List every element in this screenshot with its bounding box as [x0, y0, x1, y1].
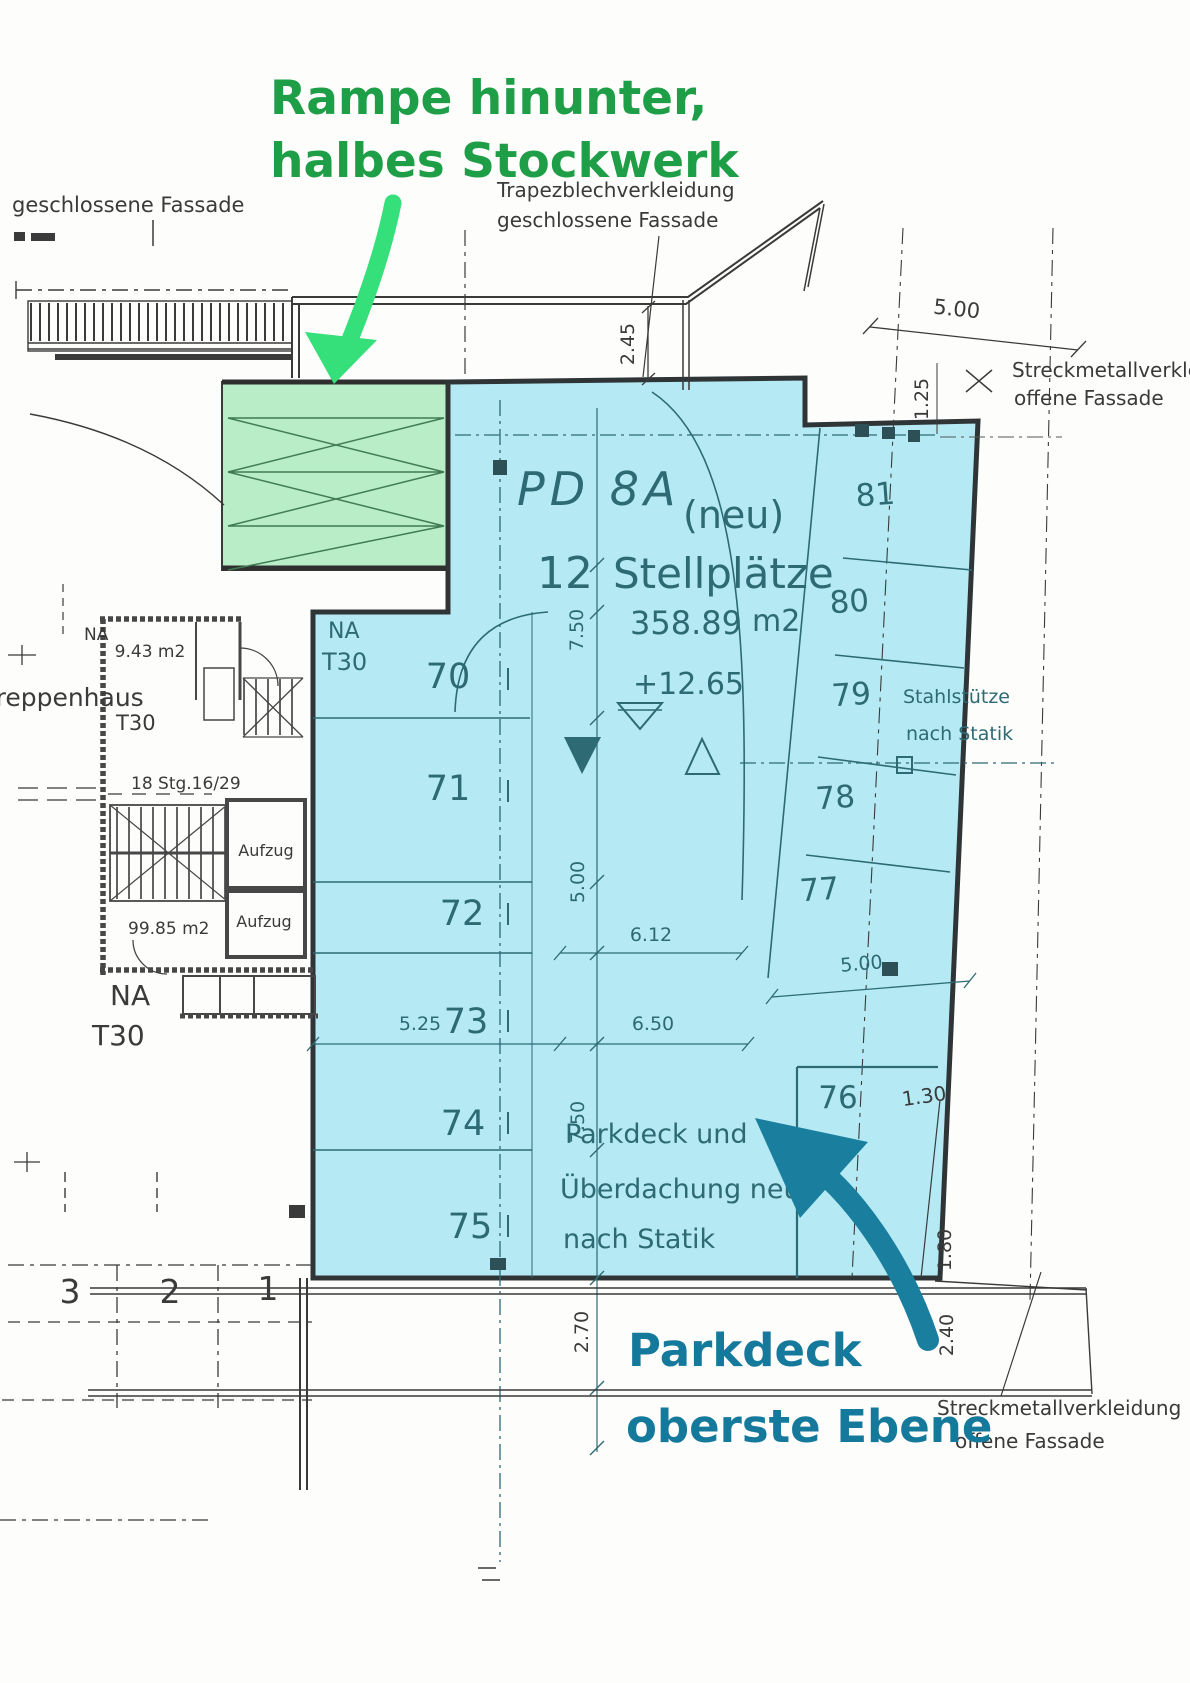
t30-label-upper: T30 [115, 711, 156, 735]
dim-750-upper: 7.50 [566, 609, 588, 651]
t30-label-lower: T30 [91, 1019, 145, 1052]
plan-level: +12.65 [633, 667, 744, 702]
label-offene-fassade-top: offene Fassade [1014, 386, 1164, 410]
dim-180: 1.80 [934, 1229, 956, 1271]
label-geschlossene-fassade-left: geschlossene Fassade [12, 193, 244, 217]
dim-125: 1.25 [911, 378, 933, 420]
stairs-count-label: 18 Stg.16/29 [131, 774, 241, 794]
na-label-upper: NA [84, 625, 109, 645]
room-area-large: 99.85 m2 [128, 919, 209, 939]
steel-note-line1: Stahlstütze [903, 686, 1010, 708]
lift-label-2: Aufzug [236, 912, 291, 931]
room-treppenhaus: Treppenhaus [0, 683, 144, 712]
spot-number-81: 81 [854, 476, 896, 515]
ground-spot-3: 3 [60, 1272, 81, 1311]
annotation-deck-line2: oberste Ebene [626, 1400, 992, 1453]
spot-number-74: 74 [441, 1104, 486, 1144]
dim-500-right: 5.00 [839, 951, 883, 977]
dim-240: 2.40 [936, 1314, 958, 1356]
facade-railing-band [14, 220, 292, 357]
dim-750-lower: 7.50 [567, 1101, 589, 1143]
dim-500-mid: 5.00 [567, 861, 589, 903]
plan-spot-count-label: Stellplätze [613, 549, 834, 598]
dim-245: 2.45 [617, 323, 639, 365]
na-label-plan: NA [328, 619, 360, 644]
plan-area-unit: m2 [752, 604, 800, 639]
spot-number-75: 75 [448, 1207, 493, 1247]
spot-number-72: 72 [440, 894, 485, 934]
plan-variant: (neu) [683, 493, 784, 537]
spot-number-71: 71 [426, 769, 471, 809]
deck-note-line1: Parkdeck und [565, 1119, 748, 1150]
plan-spot-count: 12 [537, 548, 593, 599]
dim-500-top: 5.00 [932, 295, 981, 324]
deck-note-line2: Überdachung neu [560, 1173, 801, 1205]
floor-plan-canvas: geschlossene Fassade Trapezblechverkleid… [0, 0, 1190, 1683]
na-label-lower: NA [110, 979, 150, 1012]
green-arrow [305, 203, 393, 384]
ground-spot-1: 1 [258, 1269, 279, 1308]
dim-270: 2.70 [571, 1311, 593, 1353]
spot-number-77: 77 [798, 871, 840, 910]
annotation-deck-line1: Parkdeck [628, 1324, 863, 1377]
dim-525: 5.25 [399, 1013, 441, 1035]
dim-612: 6.12 [630, 924, 672, 946]
lift-label-1: Aufzug [238, 841, 293, 860]
label-geschlossene-fassade-top: geschlossene Fassade [497, 208, 718, 232]
floor-plan-drawing: geschlossene Fassade Trapezblechverkleid… [0, 0, 1190, 1683]
steel-note-line2: nach Statik [906, 723, 1013, 745]
spot-number-76: 76 [818, 1080, 857, 1116]
plan-code: PD 8A [517, 462, 681, 516]
room-area-small: 9.43 m2 [115, 642, 186, 662]
deck-note-line3: nach Statik [563, 1224, 716, 1255]
plan-area-value: 358.89 [630, 604, 742, 642]
spot-number-78: 78 [814, 779, 856, 818]
ground-spot-2: 2 [160, 1272, 181, 1311]
stairwell-block [100, 619, 318, 1016]
annotation-ramp-line2: halbes Stockwerk [270, 134, 740, 189]
spot-number-80: 80 [828, 583, 870, 622]
spot-number-70: 70 [426, 657, 471, 697]
dim-650: 6.50 [632, 1013, 674, 1035]
ramp-highlight-region [222, 382, 448, 570]
t30-label-plan: T30 [321, 648, 367, 676]
spot-number-79: 79 [830, 676, 872, 715]
spot-number-73: 73 [444, 1002, 489, 1042]
label-streckmetall-top: Streckmetallverkleidung [1012, 358, 1190, 382]
annotation-ramp-line1: Rampe hinunter, [270, 71, 707, 126]
